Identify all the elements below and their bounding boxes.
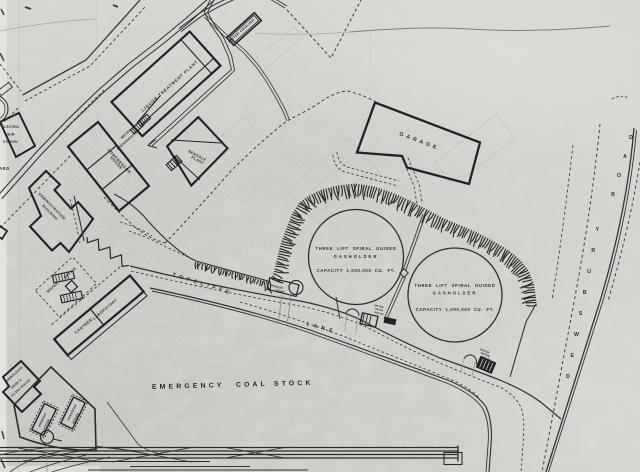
svg-text:R: R <box>611 192 615 198</box>
svg-text:ELECTRIC: ELECTRIC <box>2 125 20 129</box>
svg-text:W: W <box>574 332 579 338</box>
svg-text:Y: Y <box>596 227 600 233</box>
svg-text:D: D <box>629 135 633 141</box>
svg-text:GASHOLDER: GASHOLDER <box>433 291 478 296</box>
svg-text:CAPACITY 1,000,000 CU. FT.: CAPACITY 1,000,000 CU. FT. <box>416 307 495 312</box>
svg-text:CAPACITY 1,000,000 CU. FT.: CAPACITY 1,000,000 CU. FT. <box>317 268 396 273</box>
svg-text:R: R <box>591 248 595 254</box>
svg-text:THREE LIFT SPIRAL GUIDED: THREE LIFT SPIRAL GUIDED <box>316 246 397 251</box>
svg-text:YARD: YARD <box>0 166 10 171</box>
svg-text:E: E <box>570 353 574 359</box>
svg-text:THREE LIFT SPIRAL GUIDED: THREE LIFT SPIRAL GUIDED <box>415 283 496 288</box>
svg-text:U: U <box>587 269 591 275</box>
svg-text:O: O <box>617 173 621 179</box>
svg-text:A: A <box>623 154 627 160</box>
svg-text:S: S <box>579 311 583 317</box>
svg-text:B: B <box>583 290 587 296</box>
svg-text:D: D <box>566 374 570 380</box>
svg-text:SUB -: SUB - <box>7 133 16 137</box>
svg-text:STATION: STATION <box>3 140 18 144</box>
svg-text:GASHOLDER: GASHOLDER <box>334 254 379 259</box>
